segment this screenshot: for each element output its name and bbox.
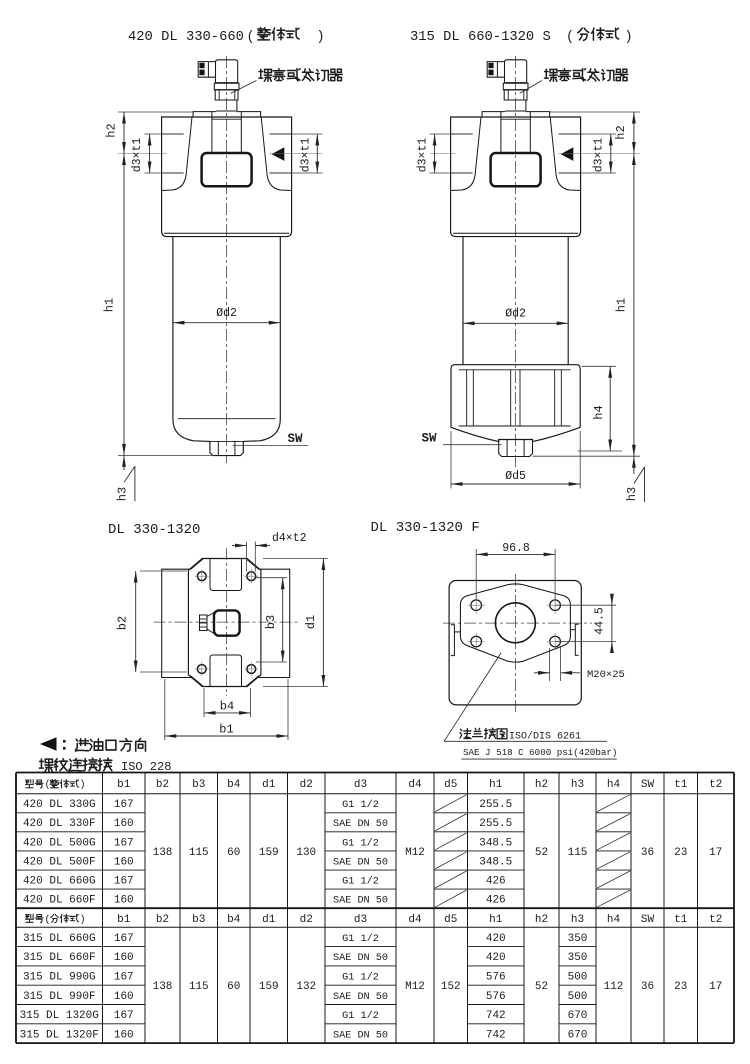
svg-text:b4: b4: [220, 700, 234, 714]
svg-text:Ød2: Ød2: [216, 307, 237, 320]
svg-text:60: 60: [227, 847, 240, 859]
svg-text:SW: SW: [288, 432, 304, 446]
svg-text:Ød2: Ød2: [505, 308, 526, 321]
svg-text:h3: h3: [116, 487, 130, 501]
svg-text:M12: M12: [405, 847, 425, 859]
svg-text:138: 138: [153, 981, 173, 993]
svg-text:d3: d3: [354, 779, 367, 791]
svg-text:315 DL 1320F: 315 DL 1320F: [20, 1029, 99, 1041]
svg-text:t2: t2: [709, 779, 722, 791]
svg-text:152: 152: [441, 981, 461, 993]
svg-text:420 DL 330-660: 420 DL 330-660: [128, 30, 244, 45]
svg-text:167: 167: [114, 1010, 134, 1022]
svg-text:d1: d1: [262, 779, 276, 791]
svg-text:h1: h1: [489, 779, 503, 791]
svg-text:h3: h3: [625, 487, 639, 501]
svg-text:b3: b3: [192, 914, 205, 926]
svg-text:132: 132: [296, 981, 316, 993]
svg-text:17: 17: [709, 981, 722, 993]
svg-text:): ): [80, 914, 86, 926]
svg-text:(: (: [247, 30, 255, 45]
svg-text:315 DL 1320G: 315 DL 1320G: [20, 1010, 99, 1022]
svg-text:255.5: 255.5: [479, 799, 512, 811]
svg-text:160: 160: [114, 991, 134, 1003]
svg-text:420: 420: [486, 933, 506, 945]
svg-text:(: (: [566, 30, 574, 45]
svg-text:DL 330-1320: DL 330-1320: [108, 522, 200, 538]
svg-text:SAE DN 50: SAE DN 50: [333, 1030, 388, 1041]
svg-text:t2: t2: [709, 914, 722, 926]
svg-text:420 DL 500F: 420 DL 500F: [23, 856, 96, 868]
svg-text:115: 115: [568, 847, 588, 859]
svg-text:M12: M12: [405, 981, 425, 993]
svg-text:d5: d5: [444, 779, 457, 791]
svg-text:159: 159: [259, 847, 279, 859]
svg-text:160: 160: [114, 1029, 134, 1041]
svg-text:b2: b2: [156, 914, 169, 926]
svg-text:t1: t1: [674, 914, 688, 926]
svg-text:96.8: 96.8: [502, 542, 530, 555]
svg-text:115: 115: [189, 981, 209, 993]
svg-text:G1 1/2: G1 1/2: [342, 933, 379, 945]
svg-text:420 DL 500G: 420 DL 500G: [23, 837, 96, 849]
svg-text:60: 60: [227, 981, 240, 993]
svg-text:160: 160: [114, 952, 134, 964]
svg-text:52: 52: [535, 981, 548, 993]
svg-text:SW: SW: [641, 914, 655, 926]
svg-text:h3: h3: [571, 779, 584, 791]
svg-text:G1 1/2: G1 1/2: [342, 1010, 379, 1022]
svg-text:23: 23: [674, 981, 687, 993]
svg-text:SAE DN 50: SAE DN 50: [333, 857, 388, 868]
svg-text:d3×t1: d3×t1: [593, 138, 606, 173]
svg-text:d4×t2: d4×t2: [272, 532, 307, 545]
svg-text:500: 500: [568, 991, 588, 1003]
svg-text:d2: d2: [300, 914, 313, 926]
svg-text:h2: h2: [535, 779, 548, 791]
svg-text:d3×t1: d3×t1: [417, 138, 430, 173]
svg-text:426: 426: [486, 875, 506, 887]
svg-text:255.5: 255.5: [479, 818, 512, 830]
svg-text:167: 167: [114, 933, 134, 945]
svg-text:742: 742: [486, 1029, 506, 1041]
svg-text:420 DL 660F: 420 DL 660F: [23, 895, 96, 907]
svg-text:23: 23: [674, 847, 687, 859]
svg-text:h1: h1: [615, 298, 629, 312]
svg-text:G1 1/2: G1 1/2: [342, 875, 379, 887]
svg-text:(: (: [45, 914, 51, 926]
svg-text:d5: d5: [444, 914, 457, 926]
svg-text:DL 330-1320 F: DL 330-1320 F: [371, 520, 480, 536]
svg-text:576: 576: [486, 991, 506, 1003]
svg-text:130: 130: [296, 847, 316, 859]
svg-text:315 DL 660F: 315 DL 660F: [23, 952, 96, 964]
svg-text:d1: d1: [304, 615, 318, 629]
svg-text:t1: t1: [674, 779, 688, 791]
svg-text:h4: h4: [592, 405, 606, 419]
svg-text:115: 115: [189, 847, 209, 859]
svg-text:d4: d4: [408, 779, 422, 791]
svg-text:167: 167: [114, 971, 134, 983]
svg-text:d1: d1: [262, 914, 276, 926]
svg-text:167: 167: [114, 799, 134, 811]
svg-text:44.5: 44.5: [594, 607, 607, 635]
svg-text:167: 167: [114, 875, 134, 887]
svg-text:h4: h4: [607, 914, 621, 926]
svg-text:): ): [625, 30, 633, 45]
svg-text:167: 167: [114, 837, 134, 849]
svg-text:d3: d3: [354, 914, 367, 926]
svg-text:Ød5: Ød5: [505, 470, 526, 483]
svg-text:742: 742: [486, 1010, 506, 1022]
svg-text:159: 159: [259, 981, 279, 993]
svg-text:b1: b1: [117, 914, 131, 926]
svg-text:h4: h4: [607, 779, 621, 791]
svg-text:b3: b3: [192, 779, 205, 791]
svg-text:): ): [80, 779, 86, 791]
svg-text:ISO/DIS 6261: ISO/DIS 6261: [509, 731, 581, 743]
svg-text:420: 420: [486, 952, 506, 964]
svg-text:d3×t1: d3×t1: [131, 138, 144, 173]
svg-text:315 DL 990F: 315 DL 990F: [23, 991, 96, 1003]
svg-text:G1 1/2: G1 1/2: [342, 971, 379, 983]
svg-text:17: 17: [709, 847, 722, 859]
svg-text:b3: b3: [264, 615, 278, 629]
svg-text:670: 670: [568, 1010, 588, 1022]
svg-text:SW: SW: [422, 432, 438, 446]
svg-text:SW: SW: [641, 779, 655, 791]
svg-text:SAE DN 50: SAE DN 50: [333, 992, 388, 1003]
svg-text:d4: d4: [408, 914, 422, 926]
svg-text:b2: b2: [156, 779, 169, 791]
svg-text:500: 500: [568, 971, 588, 983]
svg-text:h3: h3: [571, 914, 584, 926]
svg-text:36: 36: [641, 847, 654, 859]
svg-text:670: 670: [568, 1029, 588, 1041]
svg-text:350: 350: [568, 952, 588, 964]
svg-text:SAE DN 50: SAE DN 50: [333, 896, 388, 907]
svg-text:160: 160: [114, 818, 134, 830]
svg-text:138: 138: [153, 847, 173, 859]
svg-text:SAE DN 50: SAE DN 50: [333, 953, 388, 964]
svg-text:315 DL 660G: 315 DL 660G: [23, 933, 96, 945]
svg-text:420 DL 660G: 420 DL 660G: [23, 875, 96, 887]
svg-text:M20×25: M20×25: [587, 669, 625, 681]
svg-text:426: 426: [486, 895, 506, 907]
svg-text:h1: h1: [103, 298, 117, 312]
svg-text:b1: b1: [219, 723, 233, 737]
svg-text:348.5: 348.5: [479, 856, 512, 868]
svg-text:G1 1/2: G1 1/2: [342, 799, 379, 811]
svg-text:d3×t1: d3×t1: [300, 138, 313, 173]
svg-text:350: 350: [568, 933, 588, 945]
svg-text:h2: h2: [614, 125, 628, 139]
svg-text:315 DL 990G: 315 DL 990G: [23, 971, 96, 983]
svg-text:b2: b2: [116, 616, 130, 630]
svg-text:(: (: [45, 779, 51, 791]
svg-text:h2: h2: [535, 914, 548, 926]
svg-text:h1: h1: [489, 914, 503, 926]
svg-text:b4: b4: [227, 914, 241, 926]
svg-text:160: 160: [114, 856, 134, 868]
svg-text:h2: h2: [105, 123, 119, 137]
svg-text:315 DL 660-1320 S: 315 DL 660-1320 S: [410, 30, 551, 45]
svg-text:b4: b4: [227, 779, 241, 791]
svg-text:420 DL 330F: 420 DL 330F: [23, 818, 96, 830]
svg-text:SAE J 518 C 6000 psi(420bar): SAE J 518 C 6000 psi(420bar): [463, 747, 617, 758]
svg-text:52: 52: [535, 847, 548, 859]
svg-text:SAE DN 50: SAE DN 50: [333, 819, 388, 830]
svg-text:d2: d2: [300, 779, 313, 791]
svg-text:36: 36: [641, 981, 654, 993]
svg-text:b1: b1: [117, 779, 131, 791]
svg-text:112: 112: [604, 981, 624, 993]
svg-text:420 DL 330G: 420 DL 330G: [23, 799, 96, 811]
svg-text:): ): [317, 30, 325, 45]
svg-text:160: 160: [114, 895, 134, 907]
svg-text:576: 576: [486, 971, 506, 983]
svg-text:348.5: 348.5: [479, 837, 512, 849]
svg-text:G1 1/2: G1 1/2: [342, 837, 379, 849]
